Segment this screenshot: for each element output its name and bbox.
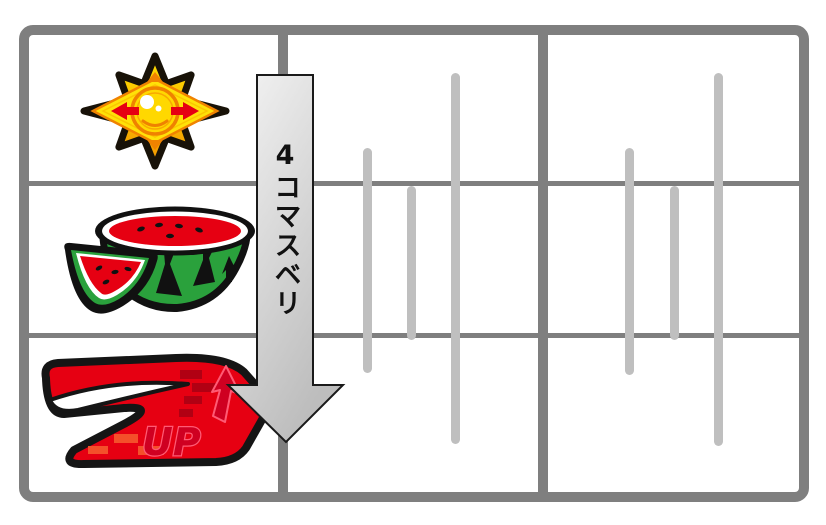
divider-vertical-right [538,33,548,494]
slip-tick-right [714,73,723,446]
slip-tick-middle [363,148,372,373]
slip-tick-middle [407,186,416,340]
star-symbol-icon [77,51,233,171]
divider-horizontal-top [27,181,799,186]
seven-up-text: UP [142,420,201,464]
reel-slip-diagram: UP 4コマスベリ [0,0,826,525]
slip-tick-right [625,148,634,375]
slip-tick-right [670,186,679,340]
slip-tick-middle [451,73,460,444]
slip-arrow-label: 4コマスベリ [257,84,313,374]
